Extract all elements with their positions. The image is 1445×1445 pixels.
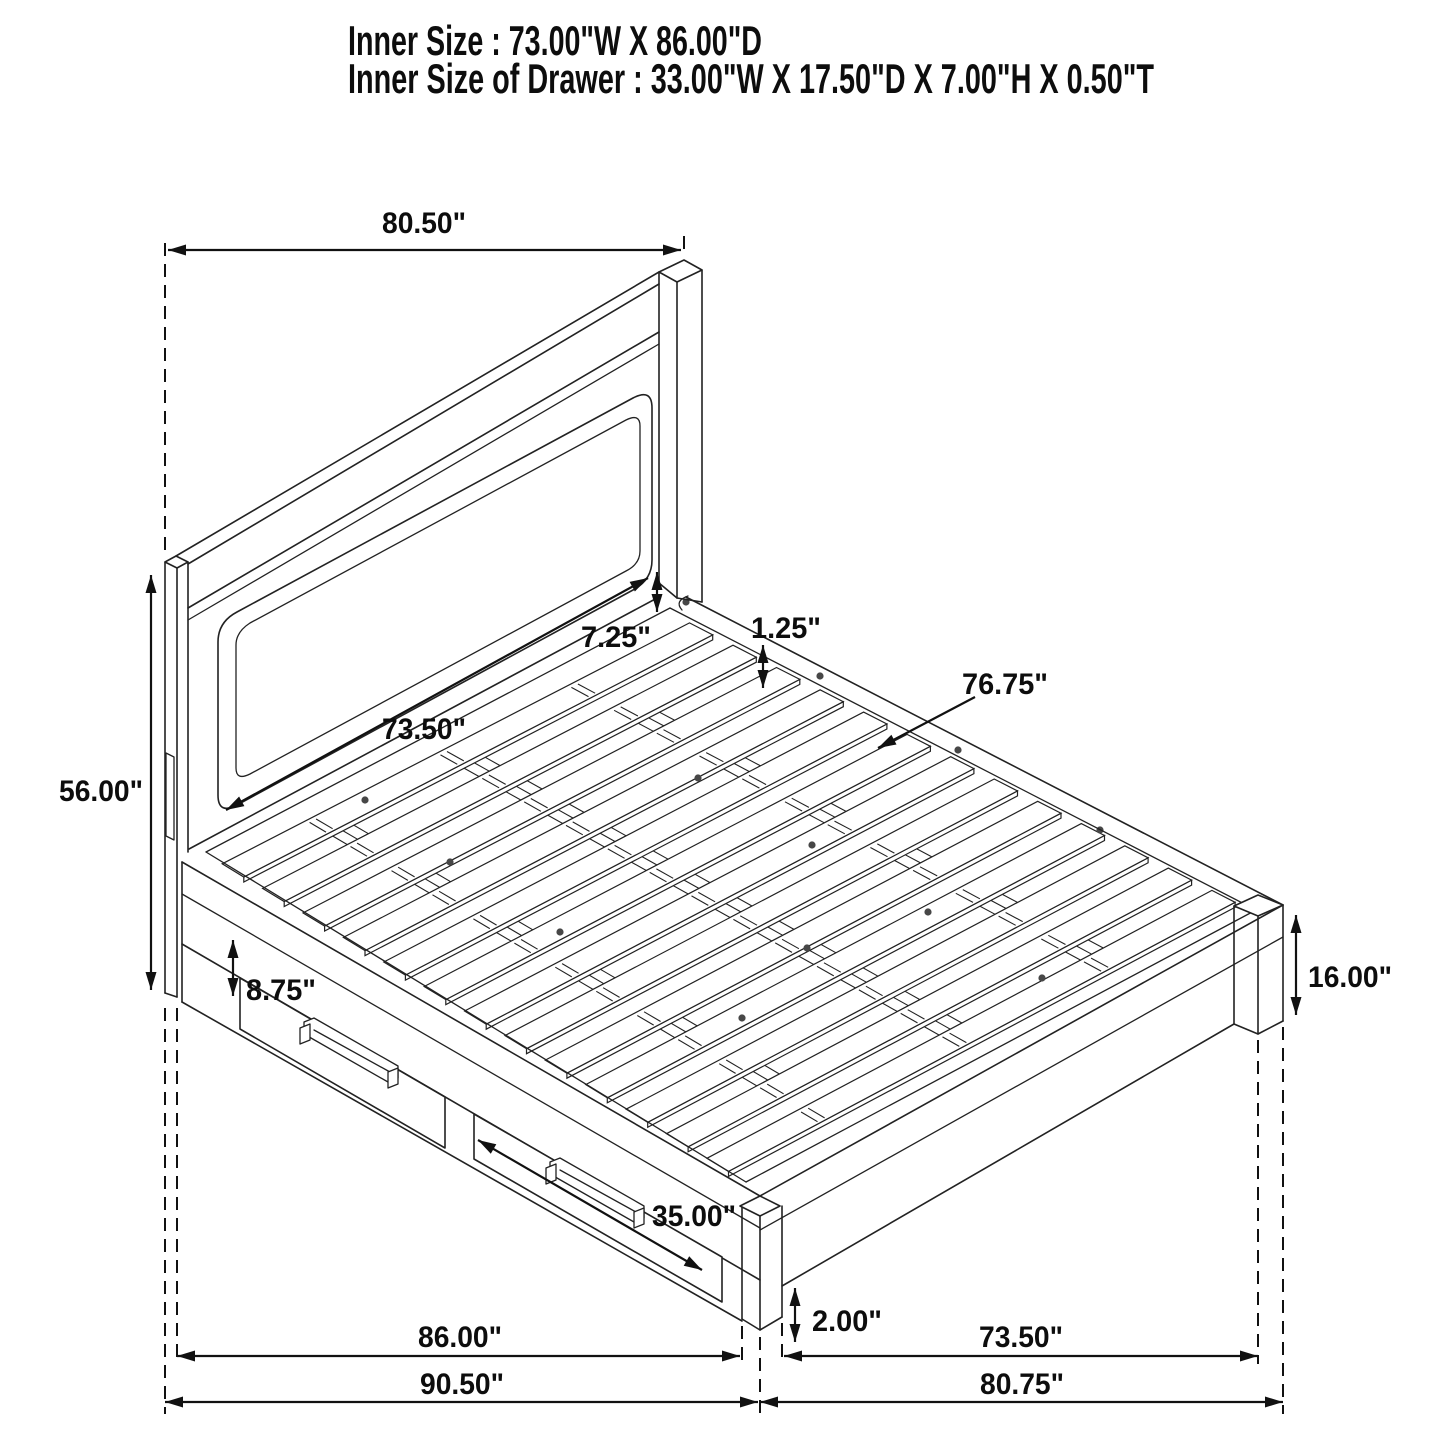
dimension-arrowhead	[228, 940, 239, 958]
bed-dimension-diagram: Inner Size : 73.00"W X 86.00"D Inner Siz…	[0, 0, 1445, 1445]
title-drawer-inner-size: Inner Size of Drawer : 33.00"W X 17.50"D…	[348, 55, 1154, 102]
dim-label-drawer-width: 35.00"	[652, 1200, 736, 1233]
dimension-arrowhead	[652, 572, 663, 590]
screw-dot	[694, 774, 701, 781]
screw-dot	[1038, 974, 1045, 981]
dim-label-box-depth: 86.00"	[418, 1321, 502, 1354]
dimension-arrowhead	[177, 1351, 195, 1362]
drawer-2-handle-foot-right	[634, 1208, 644, 1228]
dimension-arrowhead	[1265, 1397, 1283, 1408]
headboard-top-rail-front	[188, 284, 659, 564]
dimension-arrowhead	[740, 1397, 758, 1408]
dimension-arrowhead	[1240, 1351, 1258, 1362]
screw-dot	[361, 796, 368, 803]
dimension-arrowhead	[722, 1351, 740, 1362]
screw-dot	[556, 928, 563, 935]
dimension-arrowhead	[760, 1397, 778, 1408]
dim-label-platform-width: 73.50"	[979, 1321, 1063, 1354]
dimension-arrowhead	[1291, 997, 1302, 1015]
dimension-arrowhead	[663, 245, 681, 256]
headboard-left-post-notch	[166, 753, 174, 840]
headboard-frame-inner-top	[188, 344, 659, 620]
headboard-top-rail-back	[176, 272, 659, 556]
dimension-arrowhead	[1291, 915, 1302, 933]
dimension-arrowhead	[228, 978, 239, 996]
screw-dot	[446, 858, 453, 865]
dimension-arrowhead	[790, 1324, 801, 1342]
dimension-arrowhead	[168, 245, 186, 256]
dim-label-rail-height: 8.75"	[246, 974, 316, 1007]
dim-label-frame-lip: 1.25"	[751, 612, 821, 645]
dimension-arrowhead	[165, 1397, 183, 1408]
screw-dot	[816, 672, 823, 679]
screw-dot	[924, 908, 931, 915]
screw-dot	[954, 746, 961, 753]
headboard-right-post-top	[659, 260, 702, 282]
drawer-1-handle-foot-right	[388, 1068, 398, 1088]
dim-label-headboard-height: 56.00"	[59, 775, 143, 808]
drawer-1-handle-foot-left	[300, 1024, 310, 1044]
headboard-left-post-top	[165, 556, 188, 568]
front-leg-top	[740, 1196, 780, 1216]
dimension-arrowhead	[652, 594, 663, 612]
screw-dot	[803, 944, 810, 951]
headboard-top-rail-lower	[188, 332, 659, 608]
screw-dot	[738, 1014, 745, 1021]
dim-label-overall-depth: 90.50"	[420, 1368, 504, 1401]
headboard-left-post-bottom	[165, 993, 177, 997]
dim-label-foot-clearance: 2.00"	[812, 1305, 882, 1338]
screw-dot	[808, 841, 815, 848]
dim-label-headboard-width: 80.50"	[382, 207, 466, 240]
bed-dimension-diagram-page: Inner Size : 73.00"W X 86.00"D Inner Siz…	[0, 0, 1445, 1445]
dimension-arrowhead	[790, 1288, 801, 1306]
dim-label-panel-width: 73.50"	[382, 713, 466, 746]
right-leg-top	[1234, 895, 1283, 916]
dimension-arrowhead	[146, 972, 157, 990]
headboard-right-post-bottom	[659, 583, 702, 602]
dimension-arrowhead	[784, 1351, 802, 1362]
dim-label-panel-gap: 7.25"	[581, 621, 651, 654]
dimension-arrowhead	[146, 575, 157, 593]
dim-label-foot-height: 16.00"	[1308, 961, 1392, 994]
dim-label-overall-width: 80.75"	[980, 1368, 1064, 1401]
front-leg-bottom	[742, 1317, 782, 1330]
dim-label-slat-length: 76.75"	[962, 668, 1048, 701]
dimension-arrowhead	[226, 797, 244, 811]
